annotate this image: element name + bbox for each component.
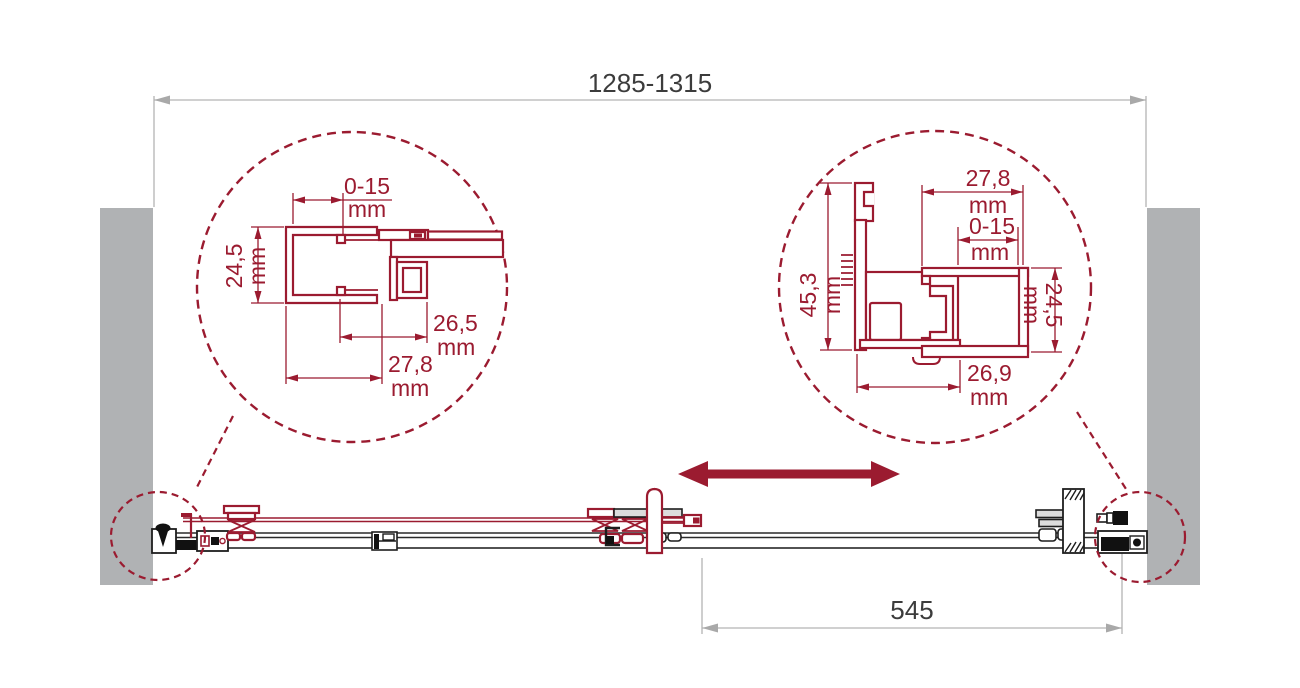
shower-door-technical-drawing: 1285-1315 545 (0, 0, 1300, 688)
right-height-unit: mm (819, 276, 845, 314)
track-stopper (372, 532, 397, 550)
right-roller (1063, 489, 1084, 553)
right-width-value: 27,8 (966, 165, 1011, 191)
right-side-unit: mm (1019, 286, 1045, 324)
slide-direction-arrow-icon (678, 461, 900, 487)
center-vertical-profile (647, 489, 662, 553)
left-outer-value: 27,8 (388, 351, 433, 377)
left-roller-assembly (224, 506, 259, 540)
overall-width-label: 1285-1315 (588, 68, 712, 98)
travel-label: 545 (890, 595, 933, 625)
left-outer-unit: mm (391, 375, 429, 401)
left-inner-unit: mm (437, 334, 475, 360)
right-height-value: 45,3 (795, 273, 821, 318)
right-end-assembly (1036, 489, 1147, 553)
right-adjust-value: 0-15 (969, 213, 1015, 239)
left-leader-line (196, 416, 233, 489)
left-inner-value: 26,5 (433, 310, 478, 336)
left-adjust-unit: mm (348, 196, 386, 222)
right-leader-line (1077, 412, 1126, 489)
rail-cross-section (391, 240, 503, 257)
left-detail-profile (286, 227, 503, 303)
left-detail-dimensions: 0-15 mm 24,5 mm 26,5 mm 27,8 mm (221, 173, 478, 401)
drawing-canvas: 1285-1315 545 (0, 0, 1300, 688)
wall-right (1147, 208, 1200, 585)
travel-dimension: 545 (702, 552, 1122, 634)
left-height-unit: mm (244, 247, 270, 285)
wall-left (100, 208, 153, 585)
right-bottom-value: 26,9 (967, 360, 1012, 386)
right-bottom-unit: mm (970, 384, 1008, 410)
right-adjust-unit: mm (971, 239, 1009, 265)
